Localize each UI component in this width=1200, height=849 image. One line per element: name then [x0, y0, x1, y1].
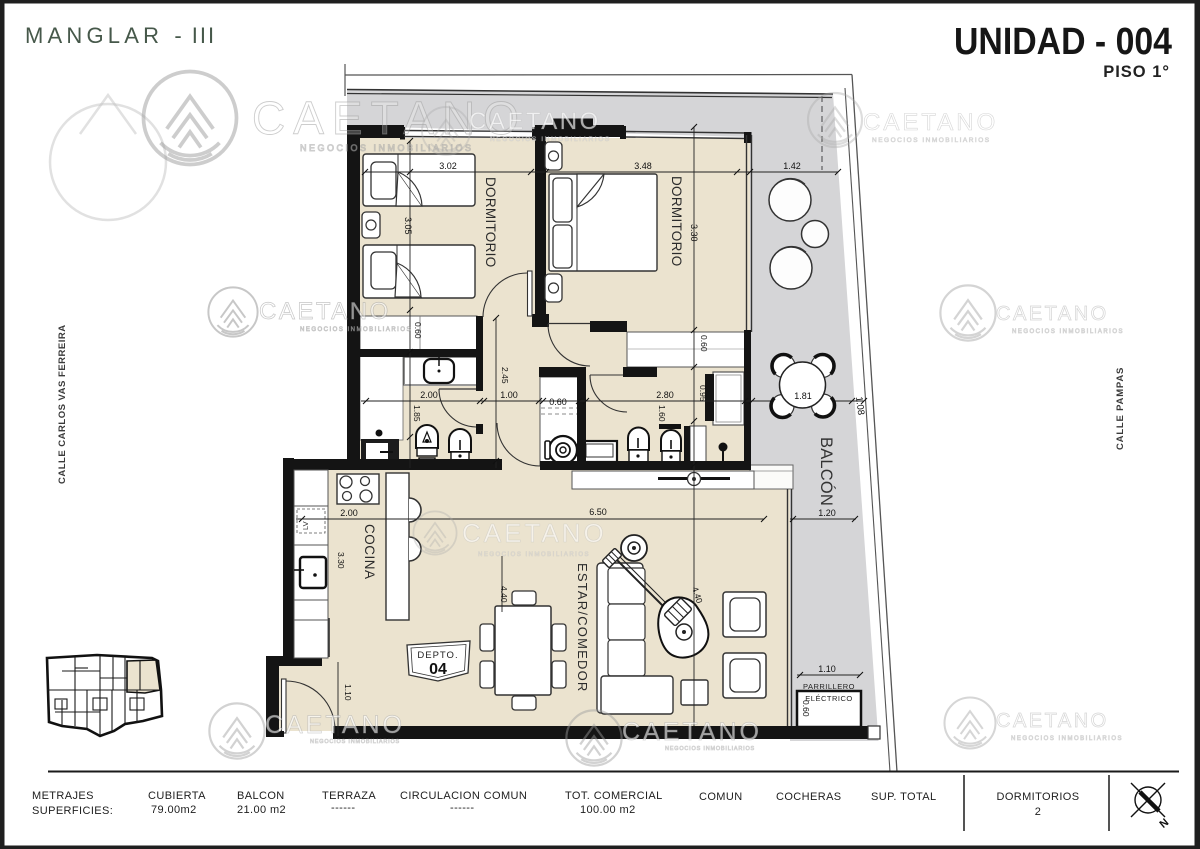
- svg-text:BALCON: BALCON: [237, 790, 285, 802]
- svg-text:100.00 m2: 100.00 m2: [580, 804, 636, 816]
- svg-text:1.10: 1.10: [818, 664, 836, 674]
- svg-text:CALLE PAMPAS: CALLE PAMPAS: [1115, 367, 1126, 450]
- svg-text:SUPERFICIES:: SUPERFICIES:: [32, 805, 113, 817]
- svg-text:3.02: 3.02: [439, 161, 457, 171]
- svg-text:DORMITORIOS: DORMITORIOS: [996, 791, 1079, 803]
- svg-text:SUP. TOTAL: SUP. TOTAL: [871, 791, 937, 803]
- svg-text:PARRILLERO: PARRILLERO: [803, 682, 855, 691]
- svg-text:BALCÓN: BALCÓN: [817, 437, 836, 506]
- svg-text:2.00: 2.00: [420, 390, 438, 400]
- svg-text:COMUN: COMUN: [699, 791, 743, 803]
- svg-text:COCINA: COCINA: [362, 524, 377, 580]
- svg-text:COCHERAS: COCHERAS: [776, 791, 842, 803]
- svg-text:------: ------: [331, 802, 355, 814]
- svg-text:METRAJES: METRAJES: [32, 790, 94, 802]
- svg-text:UNIDAD - 004: UNIDAD - 004: [954, 21, 1172, 63]
- svg-text:3.30: 3.30: [336, 552, 346, 569]
- svg-text:CAETANO: CAETANO: [622, 718, 762, 746]
- svg-text:CAETANO: CAETANO: [259, 298, 391, 325]
- svg-text:0.60: 0.60: [801, 700, 811, 717]
- svg-text:NEGOCIOS INMOBILIARIOS: NEGOCIOS INMOBILIARIOS: [300, 143, 474, 153]
- svg-text:1.10: 1.10: [343, 684, 353, 701]
- svg-text:0.60: 0.60: [549, 397, 567, 407]
- svg-text:0.95: 0.95: [698, 385, 708, 402]
- svg-text:CIRCULACION COMUN: CIRCULACION COMUN: [400, 790, 527, 802]
- svg-text:NEGOCIOS INMOBILIARIOS: NEGOCIOS INMOBILIARIOS: [1012, 329, 1124, 335]
- svg-text:NEGOCIOS INMOBILIARIOS: NEGOCIOS INMOBILIARIOS: [478, 552, 590, 558]
- svg-text:1.08: 1.08: [853, 396, 866, 416]
- svg-text:DORMITORIO: DORMITORIO: [669, 176, 684, 267]
- svg-text:PISO 1°: PISO 1°: [1103, 63, 1170, 81]
- svg-text:2.80: 2.80: [656, 390, 674, 400]
- svg-text:N: N: [1157, 816, 1171, 830]
- svg-text:CAETANO: CAETANO: [863, 109, 998, 136]
- svg-text:NEGOCIOS INMOBILIARIOS: NEGOCIOS INMOBILIARIOS: [490, 136, 611, 143]
- svg-text:------: ------: [450, 802, 474, 814]
- svg-text:2.00: 2.00: [340, 508, 358, 518]
- svg-text:NEGOCIOS INMOBILIARIOS: NEGOCIOS INMOBILIARIOS: [872, 137, 991, 144]
- svg-text:1.20: 1.20: [818, 508, 836, 518]
- svg-text:LV: LV: [301, 521, 310, 530]
- svg-text:CAETANO: CAETANO: [462, 518, 607, 548]
- svg-text:DEPTO.: DEPTO.: [417, 650, 458, 661]
- svg-text:CAETANO: CAETANO: [996, 710, 1109, 732]
- svg-text:TOT. COMERCIAL: TOT. COMERCIAL: [565, 790, 663, 802]
- svg-text:0.60: 0.60: [699, 335, 709, 352]
- svg-text:CAETANO: CAETANO: [265, 711, 405, 739]
- svg-text:CALLE CARLOS VAS FERREIRA: CALLE CARLOS VAS FERREIRA: [57, 324, 68, 484]
- svg-text:CUBIERTA: CUBIERTA: [148, 790, 206, 802]
- svg-text:NEGOCIOS INMOBILIARIOS: NEGOCIOS INMOBILIARIOS: [665, 746, 755, 752]
- svg-text:2: 2: [1035, 806, 1042, 818]
- svg-text:1.00: 1.00: [500, 390, 518, 400]
- svg-text:2.45: 2.45: [500, 367, 510, 384]
- svg-text:1.42: 1.42: [783, 161, 801, 171]
- svg-text:CAETANO: CAETANO: [469, 108, 601, 135]
- svg-text:NEGOCIOS INMOBILIARIOS: NEGOCIOS INMOBILIARIOS: [310, 739, 400, 745]
- svg-text:21.00 m2: 21.00 m2: [237, 804, 286, 816]
- svg-text:MANGLAR - III: MANGLAR - III: [25, 23, 216, 48]
- svg-text:1.60: 1.60: [657, 405, 667, 422]
- svg-text:3.30: 3.30: [689, 224, 699, 242]
- svg-text:6.50: 6.50: [589, 507, 607, 517]
- svg-text:3.48: 3.48: [634, 161, 652, 171]
- svg-text:3.05: 3.05: [403, 217, 413, 235]
- svg-text:04: 04: [429, 661, 447, 678]
- svg-text:TERRAZA: TERRAZA: [322, 790, 376, 802]
- svg-text:0.60: 0.60: [413, 322, 423, 339]
- svg-text:ELÉCTRICO: ELÉCTRICO: [805, 694, 852, 703]
- svg-text:CAETANO: CAETANO: [996, 303, 1109, 325]
- svg-text:1.85: 1.85: [412, 405, 422, 422]
- svg-text:DORMITORIO: DORMITORIO: [483, 177, 498, 268]
- svg-text:4.40: 4.40: [499, 586, 509, 603]
- svg-text:79.00m2: 79.00m2: [151, 804, 197, 816]
- svg-text:1.81: 1.81: [794, 391, 812, 401]
- svg-text:ESTAR/COMEDOR: ESTAR/COMEDOR: [575, 563, 590, 692]
- svg-text:NEGOCIOS INMOBILIARIOS: NEGOCIOS INMOBILIARIOS: [300, 327, 412, 333]
- svg-text:NEGOCIOS INMOBILIARIOS: NEGOCIOS INMOBILIARIOS: [1011, 736, 1123, 742]
